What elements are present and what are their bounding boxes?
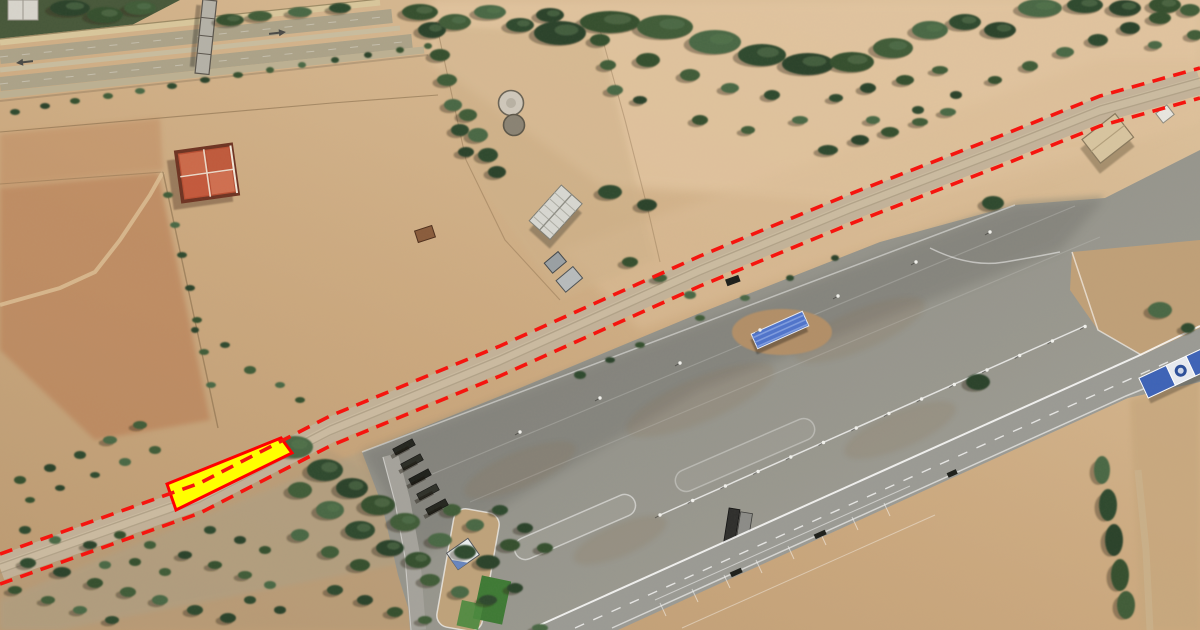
- satellite-imagery-canvas[interactable]: [0, 0, 1200, 630]
- imagery-grain: [0, 0, 1200, 630]
- satellite-map-viewport[interactable]: [0, 0, 1200, 630]
